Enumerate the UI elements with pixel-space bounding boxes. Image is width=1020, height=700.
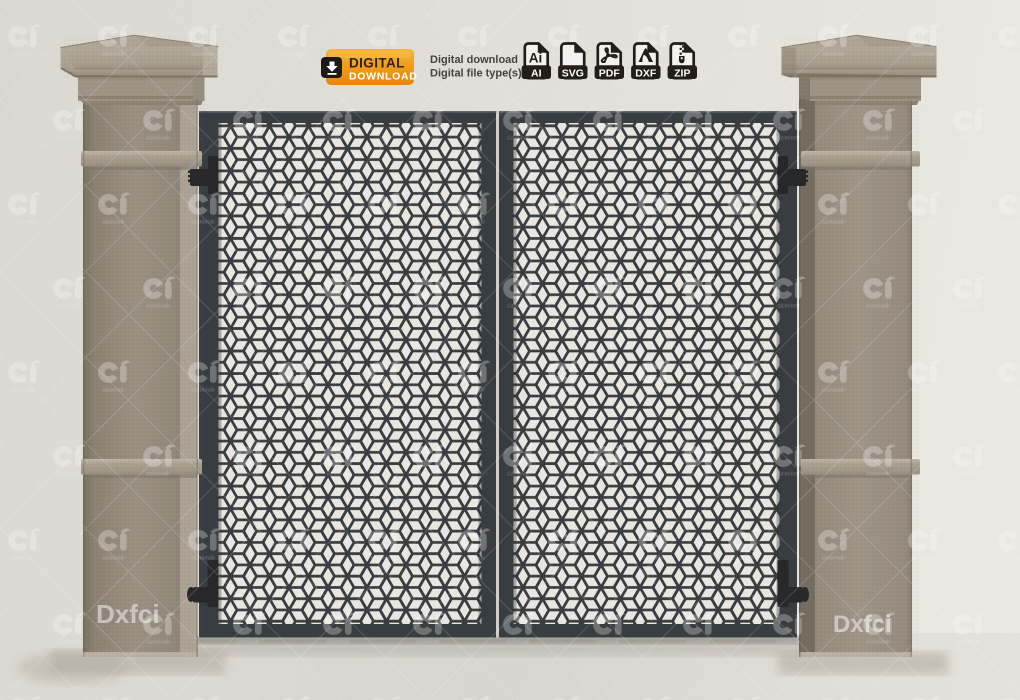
svg-text:cizimindir: cizimindir (866, 639, 890, 645)
svg-text:cizimindir: cizimindir (506, 135, 530, 141)
svg-text:cizimindir: cizimindir (236, 135, 260, 141)
svg-text:cizimindir: cizimindir (56, 639, 80, 645)
svg-text:cizimindir: cizimindir (326, 303, 350, 309)
svg-text:DIGITAL: DIGITAL (349, 56, 405, 71)
svg-text:cizimindir: cizimindir (461, 555, 485, 561)
svg-text:cizimindir: cizimindir (236, 303, 260, 309)
svg-text:cizimindir: cizimindir (776, 135, 800, 141)
svg-text:cizimindir: cizimindir (731, 219, 755, 225)
svg-text:cizimindir: cizimindir (686, 303, 710, 309)
svg-text:cizimindir: cizimindir (56, 471, 80, 477)
svg-text:cizimindir: cizimindir (596, 135, 620, 141)
svg-text:cizimindir: cizimindir (146, 639, 170, 645)
svg-text:cizimindir: cizimindir (416, 135, 440, 141)
svg-text:cizimindir: cizimindir (641, 555, 665, 561)
svg-text:cizimindir: cizimindir (956, 471, 980, 477)
svg-text:cizimindir: cizimindir (506, 639, 530, 645)
svg-text:cizimindir: cizimindir (191, 387, 215, 393)
svg-text:cizimindir: cizimindir (326, 639, 350, 645)
svg-text:SVG: SVG (562, 67, 584, 79)
svg-text:cizimindir: cizimindir (641, 219, 665, 225)
svg-text:cizimindir: cizimindir (956, 303, 980, 309)
svg-text:cizimindir: cizimindir (731, 387, 755, 393)
svg-text:cizimindir: cizimindir (1001, 555, 1020, 561)
svg-text:cizimindir: cizimindir (551, 555, 575, 561)
svg-text:cizimindir: cizimindir (281, 555, 305, 561)
svg-text:Ai: Ai (529, 51, 543, 66)
svg-text:cizimindir: cizimindir (191, 51, 215, 57)
svg-text:cizimindir: cizimindir (821, 387, 845, 393)
svg-text:cizimindir: cizimindir (551, 219, 575, 225)
svg-text:cizimindir: cizimindir (911, 387, 935, 393)
svg-text:cizimindir: cizimindir (956, 135, 980, 141)
svg-text:cizimindir: cizimindir (56, 303, 80, 309)
svg-text:cizimindir: cizimindir (11, 51, 35, 57)
svg-text:cizimindir: cizimindir (101, 219, 125, 225)
svg-text:cizimindir: cizimindir (821, 51, 845, 57)
svg-text:cizimindir: cizimindir (146, 471, 170, 477)
svg-text:cizimindir: cizimindir (326, 135, 350, 141)
svg-text:cizimindir: cizimindir (776, 639, 800, 645)
svg-text:cizimindir: cizimindir (11, 555, 35, 561)
svg-text:cizimindir: cizimindir (686, 135, 710, 141)
svg-text:cizimindir: cizimindir (911, 555, 935, 561)
svg-text:cizimindir: cizimindir (821, 555, 845, 561)
svg-text:cizimindir: cizimindir (956, 639, 980, 645)
svg-text:cizimindir: cizimindir (866, 471, 890, 477)
svg-text:cizimindir: cizimindir (101, 555, 125, 561)
svg-text:AI: AI (531, 67, 542, 79)
svg-text:cizimindir: cizimindir (911, 51, 935, 57)
svg-text:cizimindir: cizimindir (56, 135, 80, 141)
svg-text:cizimindir: cizimindir (371, 387, 395, 393)
svg-text:cizimindir: cizimindir (101, 51, 125, 57)
svg-text:Dxfci: Dxfci (96, 599, 160, 629)
svg-text:DXF: DXF (635, 67, 657, 79)
svg-text:cizimindir: cizimindir (686, 471, 710, 477)
svg-text:cizimindir: cizimindir (641, 387, 665, 393)
svg-text:cizimindir: cizimindir (326, 471, 350, 477)
svg-text:Digital download: Digital download (430, 54, 518, 66)
svg-text:cizimindir: cizimindir (236, 471, 260, 477)
svg-text:Digital file type(s):: Digital file type(s): (430, 68, 525, 80)
svg-text:cizimindir: cizimindir (866, 135, 890, 141)
svg-text:cizimindir: cizimindir (731, 51, 755, 57)
svg-text:cizimindir: cizimindir (776, 471, 800, 477)
svg-text:cizimindir: cizimindir (1001, 387, 1020, 393)
svg-text:cizimindir: cizimindir (11, 387, 35, 393)
svg-text:cizimindir: cizimindir (416, 639, 440, 645)
svg-text:cizimindir: cizimindir (146, 303, 170, 309)
svg-text:cizimindir: cizimindir (731, 555, 755, 561)
svg-text:cizimindir: cizimindir (191, 219, 215, 225)
svg-text:cizimindir: cizimindir (596, 471, 620, 477)
svg-text:cizimindir: cizimindir (281, 387, 305, 393)
svg-text:cizimindir: cizimindir (1001, 51, 1020, 57)
svg-text:cizimindir: cizimindir (281, 219, 305, 225)
svg-text:cizimindir: cizimindir (281, 51, 305, 57)
svg-text:cizimindir: cizimindir (236, 639, 260, 645)
svg-text:cizimindir: cizimindir (11, 219, 35, 225)
svg-text:cizimindir: cizimindir (101, 387, 125, 393)
svg-text:DOWNLOAD: DOWNLOAD (349, 71, 418, 83)
svg-text:cizimindir: cizimindir (821, 219, 845, 225)
svg-text:cizimindir: cizimindir (776, 303, 800, 309)
svg-text:cizimindir: cizimindir (596, 303, 620, 309)
svg-text:PDF: PDF (599, 67, 621, 79)
svg-text:cizimindir: cizimindir (551, 387, 575, 393)
svg-text:cizimindir: cizimindir (911, 219, 935, 225)
svg-text:cizimindir: cizimindir (866, 303, 890, 309)
svg-text:cizimindir: cizimindir (461, 387, 485, 393)
svg-text:cizimindir: cizimindir (416, 471, 440, 477)
svg-text:cizimindir: cizimindir (146, 135, 170, 141)
svg-text:cizimindir: cizimindir (191, 555, 215, 561)
svg-text:cizimindir: cizimindir (686, 639, 710, 645)
svg-text:cizimindir: cizimindir (461, 219, 485, 225)
svg-text:Dxfci: Dxfci (833, 611, 892, 638)
svg-text:cizimindir: cizimindir (1001, 219, 1020, 225)
svg-text:cizimindir: cizimindir (371, 219, 395, 225)
svg-text:cizimindir: cizimindir (596, 639, 620, 645)
svg-text:cizimindir: cizimindir (506, 471, 530, 477)
svg-text:cizimindir: cizimindir (371, 555, 395, 561)
svg-text:ZIP: ZIP (674, 67, 690, 79)
svg-text:cizimindir: cizimindir (416, 303, 440, 309)
svg-text:cizimindir: cizimindir (506, 303, 530, 309)
